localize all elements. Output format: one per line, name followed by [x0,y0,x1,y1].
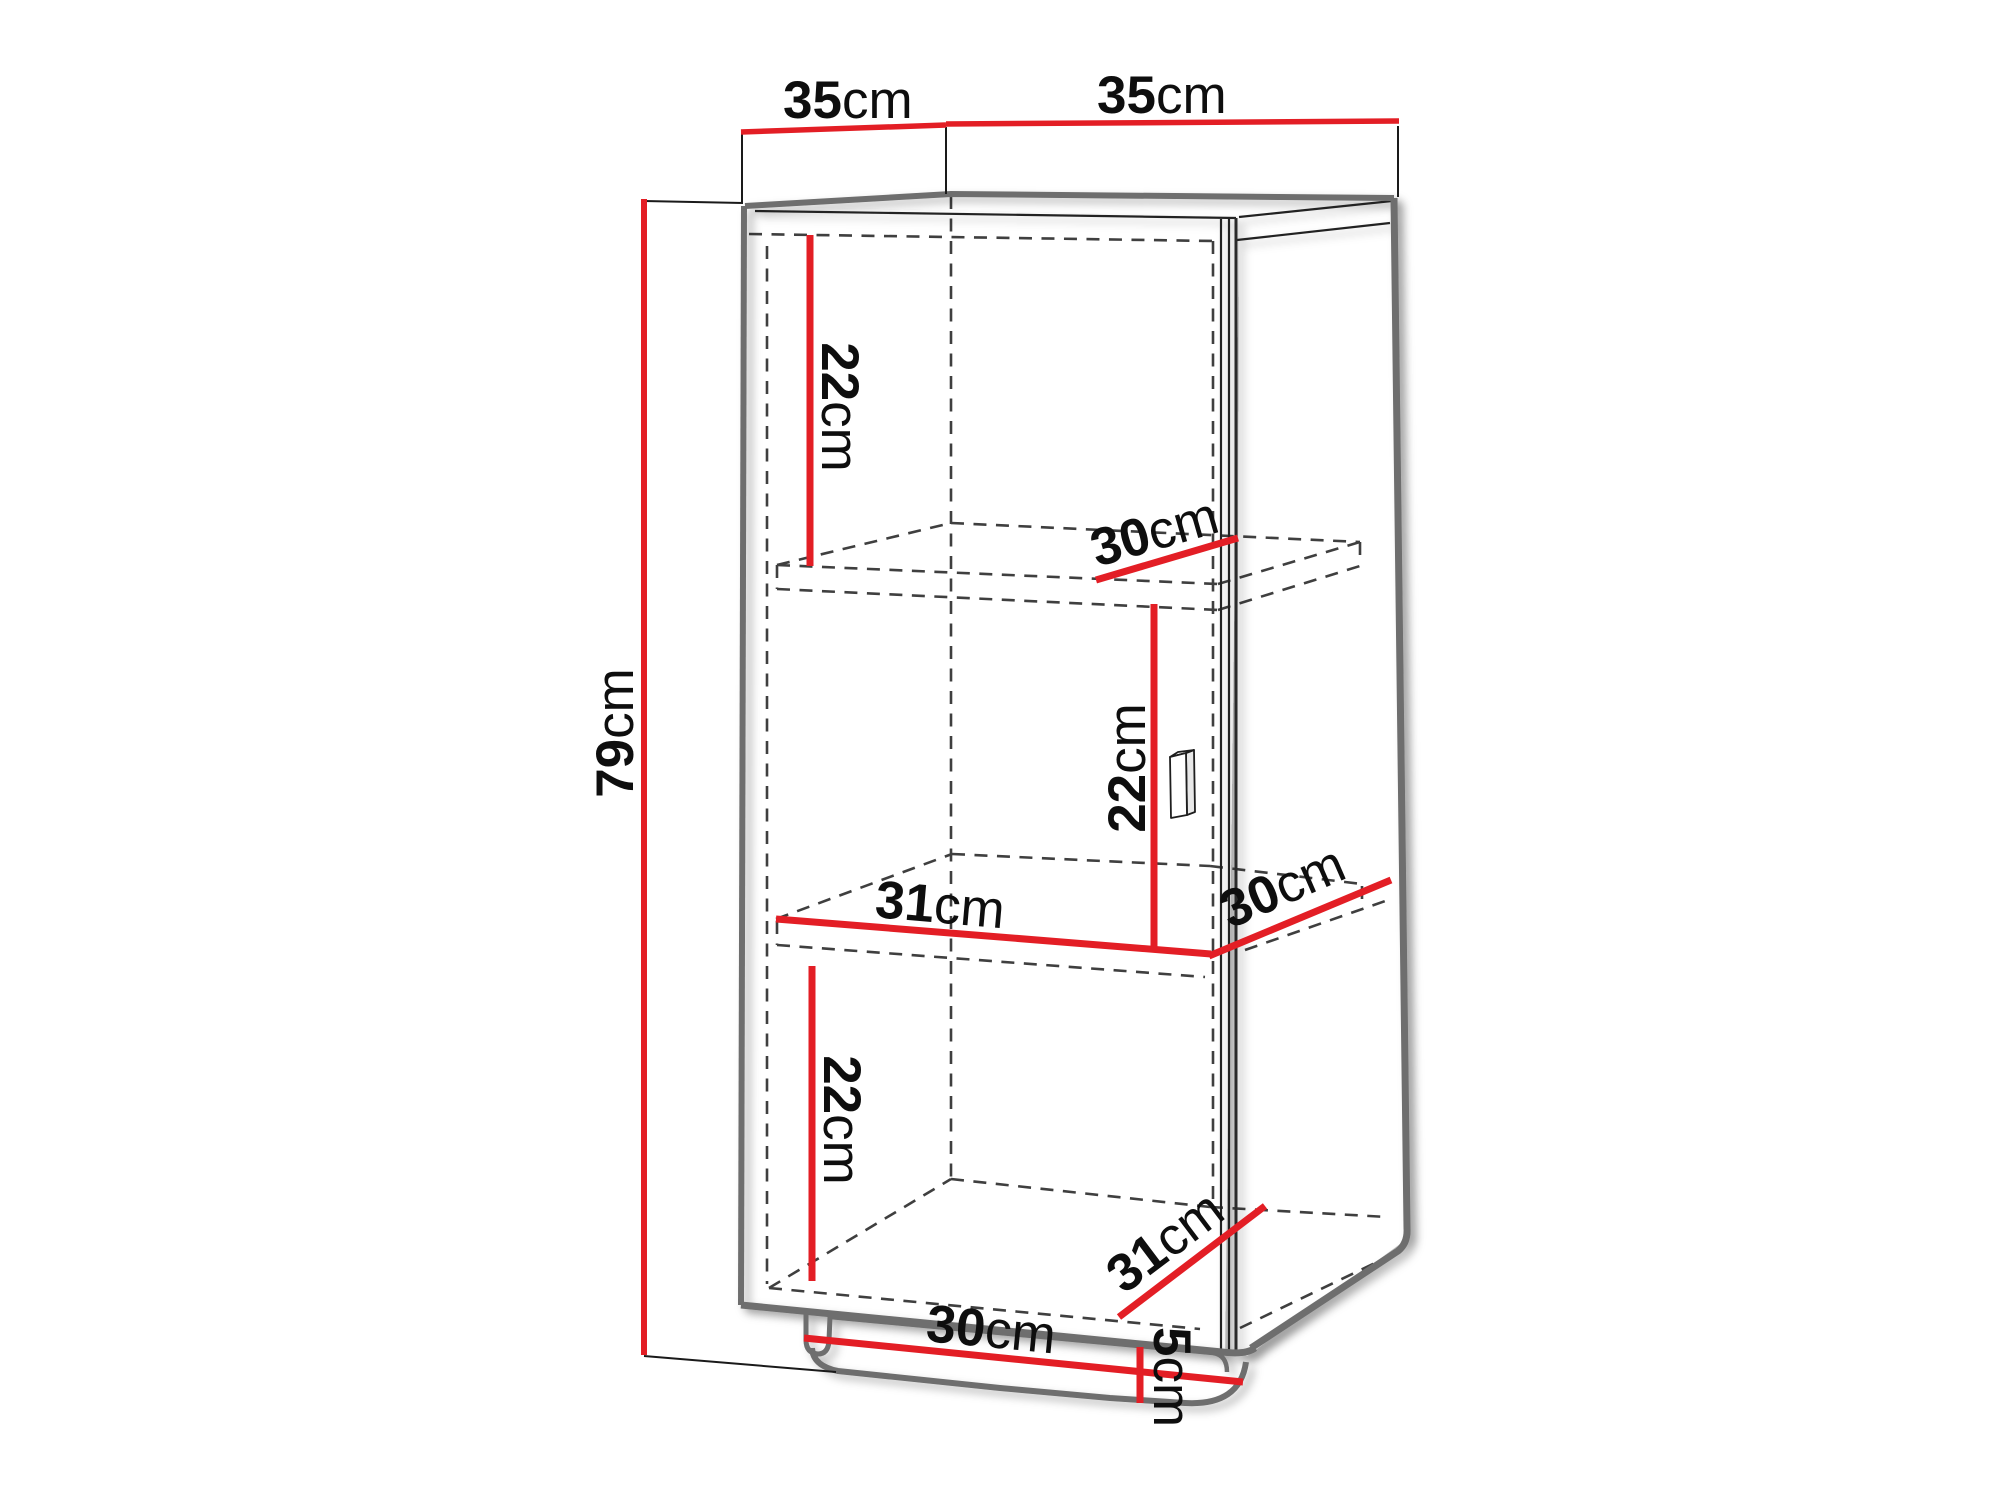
svg-text:30cm: 30cm [924,1294,1059,1365]
svg-text:35cm: 35cm [1097,66,1227,125]
svg-text:22cm: 22cm [812,1055,871,1185]
svg-text:22cm: 22cm [810,342,869,472]
svg-text:22cm: 22cm [1098,703,1157,833]
svg-text:35cm: 35cm [783,71,913,130]
svg-text:5cm: 5cm [1142,1327,1201,1427]
svg-text:31cm: 31cm [873,870,1007,940]
svg-text:79cm: 79cm [586,668,645,798]
